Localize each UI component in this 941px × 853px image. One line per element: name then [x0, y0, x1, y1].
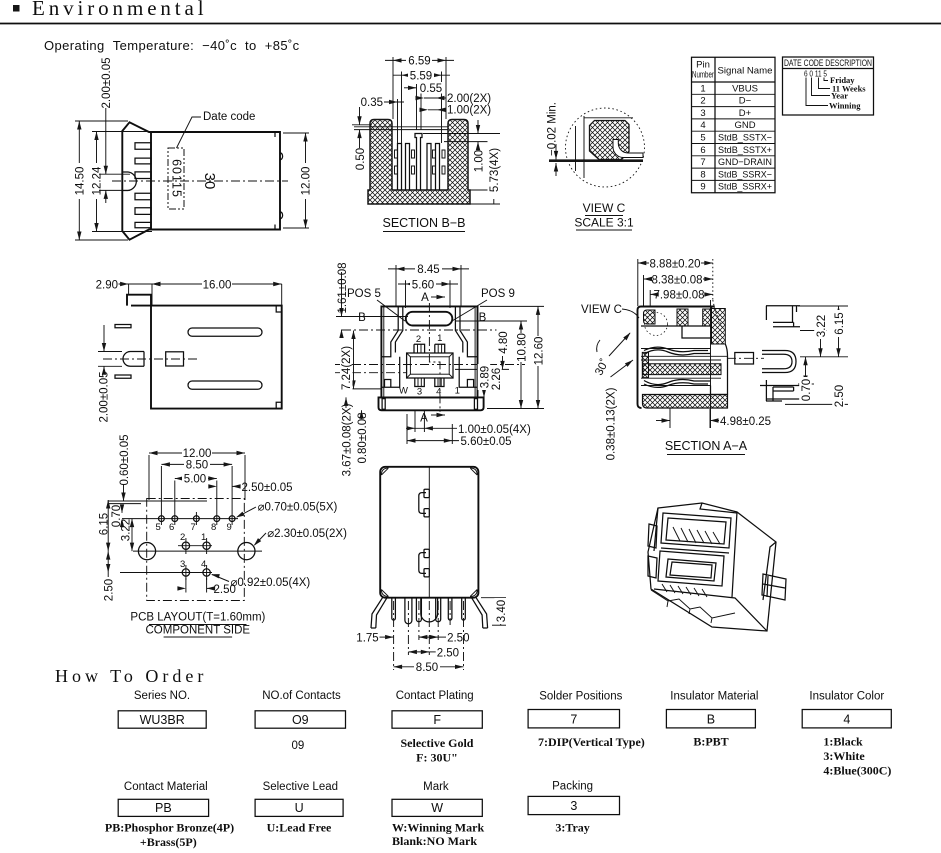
- svg-text:1.75: 1.75: [356, 632, 378, 644]
- svg-text:GND−DRAIN: GND−DRAIN: [718, 157, 772, 168]
- svg-text:Operating Temperature: −40˚c: Operating Temperature: −40˚c to +85˚c: [44, 38, 300, 53]
- svg-text:1:Black: 1:Black: [823, 735, 863, 749]
- svg-text:Contact Plating: Contact Plating: [396, 690, 474, 702]
- svg-text:Winning: Winning: [829, 101, 861, 111]
- svg-text:VIEW C: VIEW C: [581, 304, 622, 316]
- svg-text:A: A: [421, 292, 429, 304]
- svg-text:10.80: 10.80: [516, 333, 528, 362]
- svg-text:NO.of Contacts: NO.of Contacts: [262, 690, 341, 702]
- svg-text:14.50: 14.50: [75, 167, 87, 196]
- svg-text:1.00(2X): 1.00(2X): [447, 105, 491, 117]
- svg-text:8.45: 8.45: [417, 264, 439, 276]
- svg-text:+Brass(5P): +Brass(5P): [140, 835, 197, 849]
- svg-text:1: 1: [700, 83, 705, 94]
- svg-text:6: 6: [700, 145, 705, 156]
- svg-text:VIEW C: VIEW C: [583, 201, 626, 215]
- svg-text:1: 1: [437, 333, 442, 344]
- svg-text:Date code: Date code: [203, 111, 255, 123]
- svg-text:2.50±0.05: 2.50±0.05: [242, 482, 293, 494]
- svg-text:2: 2: [416, 334, 421, 345]
- svg-text:3: 3: [700, 108, 705, 119]
- svg-text:3: 3: [570, 799, 577, 813]
- svg-text:0.38±0.13(2X): 0.38±0.13(2X): [606, 387, 618, 460]
- svg-text:2.50: 2.50: [437, 647, 459, 659]
- svg-text:1.00: 1.00: [473, 150, 485, 172]
- svg-text:12.60: 12.60: [533, 337, 545, 366]
- svg-text:StdB_SSRX−: StdB_SSRX−: [718, 169, 772, 180]
- svg-text:⌀0.92±0.05(4X): ⌀0.92±0.05(4X): [231, 577, 311, 589]
- svg-text:2.00(2X): 2.00(2X): [447, 93, 491, 105]
- svg-text:3.22: 3.22: [121, 519, 133, 541]
- svg-text:SCALE 3:1: SCALE 3:1: [574, 216, 634, 230]
- svg-text:5.60±0.05: 5.60±0.05: [461, 436, 512, 448]
- svg-text:8.50: 8.50: [186, 459, 208, 471]
- svg-text:12.24: 12.24: [92, 166, 104, 195]
- svg-text:StdB_SSTX−: StdB_SSTX−: [718, 133, 772, 144]
- svg-text:VBUS: VBUS: [732, 83, 758, 94]
- svg-text:Packing: Packing: [552, 781, 593, 793]
- svg-text:5.73(4X): 5.73(4X): [489, 148, 501, 192]
- svg-text:9: 9: [227, 522, 232, 533]
- svg-text:2.50: 2.50: [447, 633, 469, 645]
- svg-text:7:DIP(Vertical Type): 7:DIP(Vertical Type): [538, 735, 645, 749]
- svg-text:Selective Gold: Selective Gold: [401, 736, 474, 750]
- svg-text:How To Order: How To Order: [55, 666, 207, 686]
- svg-text:5.00: 5.00: [184, 474, 206, 486]
- svg-text:2.00±0.05: 2.00±0.05: [101, 57, 113, 108]
- svg-text:B: B: [358, 312, 366, 324]
- svg-text:5: 5: [700, 133, 705, 144]
- svg-text:SECTION A−A: SECTION A−A: [665, 439, 748, 453]
- svg-text:Series NO.: Series NO.: [134, 690, 190, 702]
- svg-text:6.15: 6.15: [834, 312, 846, 334]
- svg-text:−0.02 Min.: −0.02 Min.: [547, 102, 559, 156]
- svg-text:3.67±0.08(2X): 3.67±0.08(2X): [341, 403, 353, 476]
- svg-text:4: 4: [201, 559, 206, 570]
- svg-text:09: 09: [292, 740, 305, 752]
- svg-text:8.50: 8.50: [416, 662, 438, 674]
- svg-text:3.22: 3.22: [816, 315, 828, 337]
- svg-text:12.00: 12.00: [183, 448, 212, 460]
- svg-text:W:Winning Mark: W:Winning Mark: [392, 821, 484, 835]
- svg-text:2.00±0.05: 2.00±0.05: [98, 371, 110, 422]
- svg-text:6: 6: [169, 522, 174, 533]
- svg-text:DATE CODE DESCRIPTION: DATE CODE DESCRIPTION: [784, 58, 872, 69]
- svg-text:2: 2: [180, 532, 185, 543]
- svg-text:⌀2.30±0.05(2X): ⌀2.30±0.05(2X): [267, 528, 347, 540]
- svg-text:0.35: 0.35: [361, 97, 383, 109]
- svg-text:GND: GND: [734, 120, 755, 131]
- svg-text:4.98±0.25: 4.98±0.25: [720, 416, 771, 428]
- svg-text:B:PBT: B:PBT: [693, 735, 728, 749]
- svg-text:D−: D−: [739, 96, 752, 107]
- svg-text:6 0 11 5: 6 0 11 5: [804, 70, 827, 79]
- svg-text:8.88±0.20: 8.88±0.20: [649, 258, 700, 270]
- svg-text:PB: PB: [155, 801, 172, 815]
- svg-text:1.61±0.08: 1.61±0.08: [337, 262, 349, 313]
- svg-text:7.98±0.08: 7.98±0.08: [653, 290, 704, 302]
- svg-text:7.24(2X): 7.24(2X): [341, 346, 353, 390]
- svg-text:7: 7: [570, 712, 577, 726]
- svg-text:Signal Name: Signal Name: [718, 66, 773, 77]
- svg-text:8: 8: [211, 522, 216, 533]
- svg-text:8: 8: [700, 169, 705, 180]
- svg-text:60115: 60115: [170, 159, 184, 198]
- svg-text:COMPONENT SIDE: COMPONENT SIDE: [146, 625, 251, 637]
- svg-text:4.80: 4.80: [498, 331, 510, 353]
- svg-text:7: 7: [700, 157, 705, 168]
- svg-text:PCB LAYOUT(T=1.60mm): PCB LAYOUT(T=1.60mm): [130, 612, 265, 624]
- svg-text:POS 5: POS 5: [347, 288, 381, 300]
- svg-text:30: 30: [201, 173, 218, 190]
- svg-text:Mark: Mark: [423, 781, 449, 793]
- svg-text:F: 30U": F: 30U": [416, 751, 458, 765]
- svg-text:2.50: 2.50: [104, 579, 116, 601]
- svg-text:7: 7: [191, 522, 196, 533]
- svg-text:6.59: 6.59: [408, 56, 430, 68]
- svg-text:StdB_SSRX+: StdB_SSRX+: [718, 182, 772, 193]
- svg-text:0.60±0.05: 0.60±0.05: [119, 434, 131, 485]
- svg-text:5.60: 5.60: [412, 279, 434, 291]
- svg-text:POS 9: POS 9: [481, 288, 515, 300]
- svg-text:W: W: [431, 801, 443, 815]
- svg-text:8.38±0.08: 8.38±0.08: [651, 274, 702, 286]
- svg-text:Number: Number: [692, 70, 714, 81]
- svg-text:Blank:NO Mark: Blank:NO Mark: [392, 834, 477, 848]
- svg-text:PB:Phosphor Bronze(4P): PB:Phosphor Bronze(4P): [105, 821, 234, 835]
- svg-text:U:Lead Free: U:Lead Free: [267, 821, 332, 835]
- svg-text:2.90: 2.90: [96, 280, 118, 292]
- svg-text:0.70: 0.70: [801, 379, 813, 401]
- svg-text:Insulator Material: Insulator Material: [670, 691, 758, 703]
- svg-text:1: 1: [201, 532, 206, 543]
- svg-text:16.00: 16.00: [203, 280, 232, 292]
- svg-text:4: 4: [700, 120, 705, 131]
- svg-text:5.59: 5.59: [410, 71, 432, 83]
- svg-text:4:Blue(300C): 4:Blue(300C): [823, 764, 891, 778]
- svg-text:B: B: [479, 312, 487, 324]
- svg-text:SECTION B−B: SECTION B−B: [382, 216, 465, 230]
- svg-text:W: W: [399, 386, 408, 397]
- svg-text:Solder Positions: Solder Positions: [539, 691, 622, 703]
- svg-text:3: 3: [417, 387, 422, 398]
- svg-text:Contact Material: Contact Material: [124, 781, 208, 793]
- svg-text:3:Tray: 3:Tray: [555, 821, 589, 835]
- svg-text:5: 5: [156, 522, 161, 533]
- svg-text:2: 2: [700, 96, 705, 107]
- svg-text:2.50: 2.50: [834, 385, 846, 407]
- svg-text:D+: D+: [739, 108, 752, 119]
- svg-text:Environmental: Environmental: [32, 0, 208, 20]
- svg-text:Year: Year: [831, 91, 848, 101]
- svg-text:U: U: [295, 801, 304, 815]
- svg-text:WU3BR: WU3BR: [140, 713, 185, 727]
- svg-text:F: F: [433, 713, 441, 727]
- svg-text:⌀0.70±0.05(5X): ⌀0.70±0.05(5X): [258, 501, 338, 513]
- svg-text:2.26: 2.26: [491, 368, 503, 390]
- svg-text:Insulator Color: Insulator Color: [809, 691, 884, 703]
- svg-text:1: 1: [455, 386, 460, 397]
- svg-text:StdB_SSTX+: StdB_SSTX+: [718, 145, 772, 156]
- svg-text:3:White: 3:White: [823, 749, 865, 763]
- svg-text:0.55: 0.55: [420, 83, 442, 95]
- svg-text:B: B: [707, 712, 715, 726]
- svg-text:6.15: 6.15: [99, 513, 111, 535]
- svg-text:1.00±0.05(4X): 1.00±0.05(4X): [458, 424, 531, 436]
- svg-text:0.50: 0.50: [355, 148, 367, 170]
- svg-text:4: 4: [436, 387, 441, 398]
- svg-text:O9: O9: [292, 713, 309, 727]
- svg-text:4: 4: [843, 712, 850, 726]
- svg-text:9: 9: [700, 182, 705, 193]
- svg-text:Selective Lead: Selective Lead: [263, 781, 338, 793]
- svg-text:12.00: 12.00: [301, 167, 313, 196]
- svg-text:2.50: 2.50: [214, 584, 236, 596]
- svg-text:0.80±0.08: 0.80±0.08: [357, 412, 369, 463]
- svg-text:3.40: 3.40: [496, 600, 508, 622]
- svg-text:3: 3: [180, 559, 185, 570]
